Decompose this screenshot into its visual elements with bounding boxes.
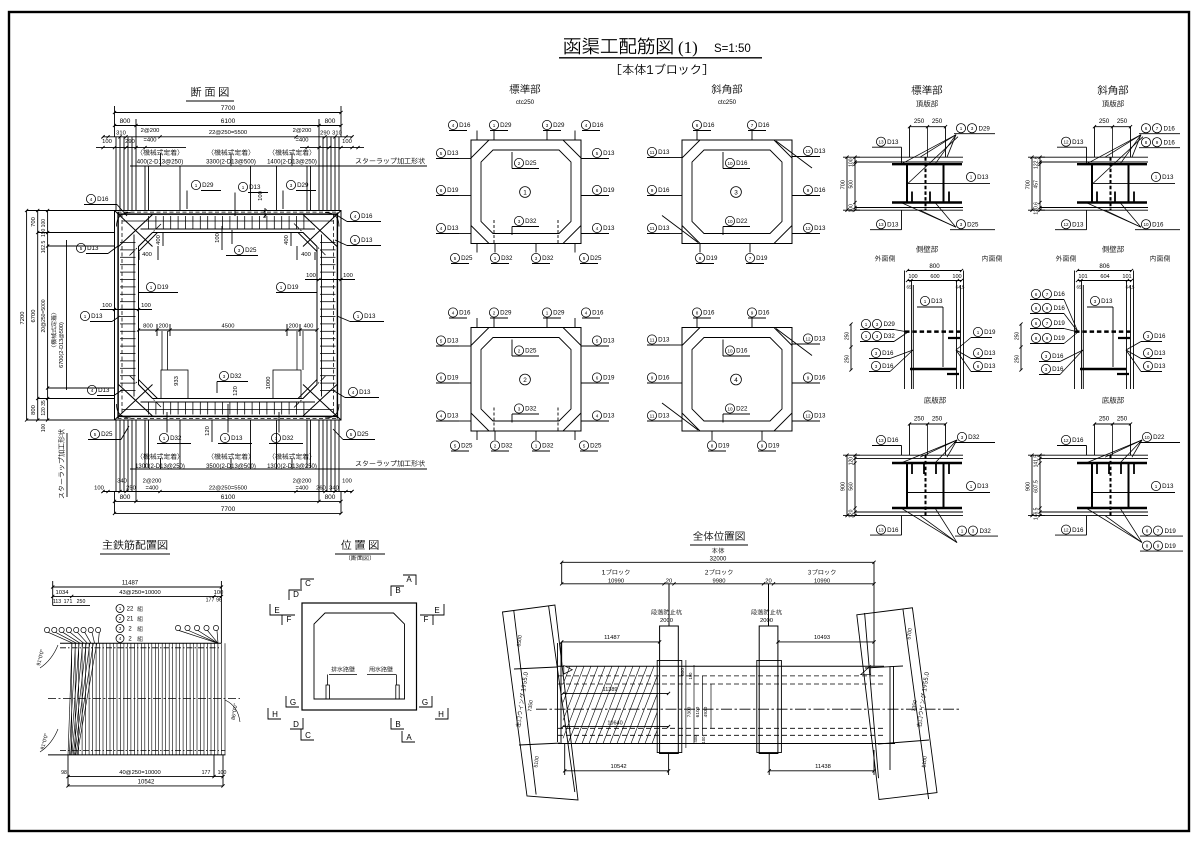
svg-text:2@200: 2@200 bbox=[143, 479, 162, 485]
svg-text:11438: 11438 bbox=[815, 764, 831, 770]
svg-text:D19: D19 bbox=[706, 255, 718, 262]
svg-text:5: 5 bbox=[583, 256, 586, 261]
svg-text:3: 3 bbox=[875, 364, 878, 369]
svg-text:D16: D16 bbox=[1052, 353, 1064, 360]
svg-text:6: 6 bbox=[1147, 364, 1150, 369]
svg-text:9: 9 bbox=[761, 443, 764, 448]
svg-text:12: 12 bbox=[805, 149, 811, 154]
svg-text:11389: 11389 bbox=[603, 687, 618, 693]
svg-text:D16: D16 bbox=[882, 350, 894, 357]
svg-text:310: 310 bbox=[332, 131, 342, 137]
svg-text:D13: D13 bbox=[249, 184, 261, 191]
svg-text:1: 1 bbox=[1155, 484, 1158, 489]
svg-text:1: 1 bbox=[865, 322, 868, 327]
svg-text:D13: D13 bbox=[447, 413, 459, 420]
svg-text:4: 4 bbox=[585, 310, 588, 315]
svg-text:C: C bbox=[305, 731, 311, 740]
svg-text:1: 1 bbox=[960, 126, 963, 131]
svg-text:1: 1 bbox=[970, 175, 973, 180]
svg-text:607.5: 607.5 bbox=[1034, 480, 1040, 493]
svg-text:D13: D13 bbox=[658, 337, 670, 344]
svg-text:D13: D13 bbox=[814, 336, 826, 343]
svg-text:D16: D16 bbox=[1164, 139, 1176, 146]
svg-text:5: 5 bbox=[350, 432, 353, 437]
svg-text:D22: D22 bbox=[736, 218, 748, 225]
svg-text:D16: D16 bbox=[592, 310, 604, 317]
svg-text:D32: D32 bbox=[525, 406, 537, 413]
svg-text:400(2-D13@250): 400(2-D13@250) bbox=[137, 160, 183, 166]
svg-text:D13: D13 bbox=[231, 435, 243, 442]
svg-text:65: 65 bbox=[1076, 285, 1082, 290]
svg-text:D32: D32 bbox=[968, 434, 980, 441]
svg-text:D13: D13 bbox=[447, 338, 459, 345]
svg-text:100: 100 bbox=[342, 139, 352, 145]
svg-text:D13: D13 bbox=[658, 413, 670, 420]
svg-text:12: 12 bbox=[1063, 438, 1069, 443]
svg-text:1: 1 bbox=[150, 285, 153, 290]
svg-text:800: 800 bbox=[120, 118, 131, 125]
svg-text:1034: 1034 bbox=[56, 590, 70, 596]
svg-text:2: 2 bbox=[119, 616, 122, 621]
svg-text:A: A bbox=[406, 733, 412, 742]
svg-text:12: 12 bbox=[805, 226, 811, 231]
svg-text:D32: D32 bbox=[282, 435, 294, 442]
svg-text:4: 4 bbox=[354, 214, 357, 219]
svg-text:D13: D13 bbox=[977, 483, 989, 490]
svg-text:146.5: 146.5 bbox=[1034, 507, 1040, 520]
svg-text:5: 5 bbox=[596, 338, 599, 343]
svg-text:3: 3 bbox=[535, 256, 538, 261]
svg-text:(1): (1) bbox=[678, 38, 698, 57]
svg-text:933: 933 bbox=[174, 376, 180, 386]
svg-text:D25: D25 bbox=[461, 443, 473, 450]
svg-text:11: 11 bbox=[650, 337, 655, 342]
svg-text:D16: D16 bbox=[887, 527, 899, 534]
svg-text:D13: D13 bbox=[931, 298, 943, 305]
svg-text:D16: D16 bbox=[658, 375, 670, 382]
svg-text:D16: D16 bbox=[97, 196, 109, 203]
svg-text:200: 200 bbox=[159, 324, 169, 330]
svg-text:310: 310 bbox=[116, 131, 126, 137]
svg-text:D19: D19 bbox=[768, 443, 780, 450]
svg-text:9: 9 bbox=[1046, 336, 1049, 341]
svg-text:D16: D16 bbox=[814, 375, 826, 382]
svg-text:H: H bbox=[272, 710, 278, 719]
svg-text:120: 120 bbox=[205, 426, 211, 436]
svg-text:250: 250 bbox=[914, 416, 925, 423]
svg-text:6700(2-D13@500): 6700(2-D13@500) bbox=[59, 322, 65, 368]
svg-text:D32: D32 bbox=[501, 443, 513, 450]
svg-text:5: 5 bbox=[440, 338, 443, 343]
svg-text:D29: D29 bbox=[500, 122, 512, 129]
svg-text:806: 806 bbox=[1099, 263, 1110, 270]
svg-text:2: 2 bbox=[518, 161, 521, 166]
svg-text:900: 900 bbox=[841, 482, 847, 491]
svg-text:D19: D19 bbox=[1054, 320, 1066, 327]
svg-text:2000: 2000 bbox=[660, 618, 673, 624]
svg-text:3: 3 bbox=[960, 222, 963, 227]
svg-text:1: 1 bbox=[280, 285, 283, 290]
svg-text:2@200: 2@200 bbox=[293, 128, 312, 134]
svg-text:D13: D13 bbox=[658, 149, 670, 156]
svg-text:6: 6 bbox=[1035, 321, 1038, 326]
svg-text:D25: D25 bbox=[590, 255, 602, 262]
svg-text:21: 21 bbox=[127, 617, 134, 623]
svg-text:800: 800 bbox=[143, 324, 153, 330]
svg-text:D16: D16 bbox=[459, 122, 471, 129]
svg-text:S=1:50: S=1:50 bbox=[714, 43, 751, 55]
svg-text:6700: 6700 bbox=[31, 310, 37, 323]
svg-text:D16: D16 bbox=[459, 310, 471, 317]
svg-text:D19: D19 bbox=[1054, 335, 1066, 342]
svg-text:3: 3 bbox=[1045, 367, 1048, 372]
svg-text:120.6: 120.6 bbox=[1034, 202, 1040, 215]
svg-text:7: 7 bbox=[749, 256, 752, 261]
svg-text:457: 457 bbox=[1034, 180, 1040, 189]
svg-text:340: 340 bbox=[329, 486, 339, 492]
svg-text:22: 22 bbox=[127, 607, 134, 613]
svg-text:D16: D16 bbox=[703, 310, 715, 317]
svg-text:100: 100 bbox=[258, 191, 264, 201]
svg-text:1: 1 bbox=[977, 330, 980, 335]
svg-text:D13: D13 bbox=[1072, 139, 1084, 146]
svg-text:D29: D29 bbox=[297, 182, 309, 189]
svg-text:D13: D13 bbox=[887, 221, 899, 228]
svg-text:113: 113 bbox=[53, 599, 61, 605]
svg-text:11: 11 bbox=[650, 226, 655, 231]
svg-text:10: 10 bbox=[1143, 222, 1149, 227]
svg-text:D25: D25 bbox=[245, 247, 257, 254]
svg-text:700: 700 bbox=[1026, 180, 1032, 189]
svg-text:6: 6 bbox=[977, 364, 980, 369]
svg-text:9: 9 bbox=[807, 188, 810, 193]
svg-text:1: 1 bbox=[493, 123, 496, 128]
svg-text:400: 400 bbox=[142, 252, 152, 258]
svg-text:D13: D13 bbox=[359, 389, 371, 396]
svg-text:4: 4 bbox=[596, 226, 599, 231]
svg-text:D25: D25 bbox=[461, 255, 473, 262]
svg-text:100: 100 bbox=[41, 424, 47, 433]
svg-text:9: 9 bbox=[1157, 543, 1160, 548]
svg-text:100: 100 bbox=[94, 486, 104, 492]
svg-text:2@200: 2@200 bbox=[141, 128, 160, 134]
svg-text:D13: D13 bbox=[1101, 298, 1113, 305]
svg-text:6: 6 bbox=[440, 375, 443, 380]
svg-text:800: 800 bbox=[325, 118, 336, 125]
svg-text:D16: D16 bbox=[1054, 291, 1066, 298]
svg-text:6: 6 bbox=[596, 188, 599, 193]
svg-text:98: 98 bbox=[61, 770, 67, 776]
svg-text:6: 6 bbox=[440, 188, 443, 193]
svg-text:7200: 7200 bbox=[20, 312, 26, 325]
svg-text:700: 700 bbox=[841, 180, 847, 189]
svg-text:2: 2 bbox=[518, 348, 521, 353]
svg-text:D16: D16 bbox=[361, 213, 373, 220]
svg-text:F: F bbox=[424, 615, 429, 624]
svg-text:250: 250 bbox=[1099, 416, 1110, 423]
svg-text:122.6: 122.6 bbox=[1034, 156, 1040, 169]
svg-text:D19: D19 bbox=[287, 284, 299, 291]
svg-text:12: 12 bbox=[805, 413, 811, 418]
svg-text:6: 6 bbox=[1035, 292, 1038, 297]
svg-text:22@250=5500: 22@250=5500 bbox=[209, 130, 247, 136]
svg-text:=400: =400 bbox=[143, 138, 156, 144]
svg-text:560: 560 bbox=[849, 482, 855, 491]
svg-text:64,5: 64,5 bbox=[1126, 285, 1135, 290]
svg-text:4: 4 bbox=[585, 123, 588, 128]
svg-text:11: 11 bbox=[650, 150, 655, 155]
svg-text:2000: 2000 bbox=[760, 618, 773, 624]
svg-text:D16: D16 bbox=[736, 348, 748, 355]
svg-text:100: 100 bbox=[214, 590, 224, 596]
svg-text:700: 700 bbox=[31, 217, 37, 227]
svg-text:1: 1 bbox=[119, 606, 122, 611]
svg-text:D19: D19 bbox=[1165, 528, 1177, 535]
svg-text:250: 250 bbox=[1099, 118, 1110, 125]
svg-text:4: 4 bbox=[352, 390, 355, 395]
svg-text:7700: 7700 bbox=[221, 506, 236, 513]
svg-text:96: 96 bbox=[216, 598, 222, 604]
svg-text:D13: D13 bbox=[87, 245, 99, 252]
svg-text:D16: D16 bbox=[592, 122, 604, 129]
svg-text:120: 120 bbox=[849, 457, 855, 466]
svg-text:4: 4 bbox=[440, 226, 443, 231]
svg-text:=400: =400 bbox=[145, 486, 158, 492]
svg-text:5: 5 bbox=[596, 151, 599, 156]
svg-text:7700: 7700 bbox=[221, 105, 236, 112]
svg-text:6100: 6100 bbox=[221, 494, 236, 501]
svg-text:G: G bbox=[290, 698, 296, 707]
svg-text:8: 8 bbox=[1035, 336, 1038, 341]
svg-text:D13: D13 bbox=[658, 225, 670, 232]
svg-text:4: 4 bbox=[596, 413, 599, 418]
svg-text:4: 4 bbox=[452, 123, 455, 128]
svg-text:7: 7 bbox=[1046, 321, 1049, 326]
svg-text:100: 100 bbox=[218, 770, 227, 776]
svg-text:2: 2 bbox=[493, 310, 496, 315]
svg-text:100: 100 bbox=[306, 273, 316, 279]
svg-text:=400: =400 bbox=[295, 138, 308, 144]
svg-text:3: 3 bbox=[972, 528, 975, 533]
svg-text:D16: D16 bbox=[758, 310, 770, 317]
svg-text:3: 3 bbox=[1094, 299, 1097, 304]
svg-text:3: 3 bbox=[290, 183, 293, 188]
svg-text:1: 1 bbox=[523, 190, 527, 197]
svg-text:250: 250 bbox=[845, 332, 851, 341]
svg-text:177: 177 bbox=[202, 770, 211, 776]
svg-text:1: 1 bbox=[970, 484, 973, 489]
svg-text:F: F bbox=[287, 615, 292, 624]
svg-text:250: 250 bbox=[1015, 355, 1021, 364]
svg-text:250: 250 bbox=[845, 355, 851, 364]
svg-text:100: 100 bbox=[701, 736, 706, 744]
svg-text:12: 12 bbox=[1063, 527, 1069, 532]
svg-text:9: 9 bbox=[751, 310, 754, 315]
svg-text:100: 100 bbox=[688, 672, 693, 680]
svg-text:2: 2 bbox=[494, 443, 497, 448]
svg-text:200: 200 bbox=[289, 324, 299, 330]
svg-text:10542: 10542 bbox=[611, 764, 627, 770]
svg-text:D19: D19 bbox=[1165, 543, 1177, 550]
svg-text:900: 900 bbox=[1026, 482, 1032, 491]
svg-text:10: 10 bbox=[727, 348, 733, 353]
svg-text:D32: D32 bbox=[980, 528, 992, 535]
svg-text:100: 100 bbox=[849, 158, 855, 167]
svg-text:B: B bbox=[395, 720, 400, 729]
svg-text:D16: D16 bbox=[887, 437, 899, 444]
svg-text:20@250=5000: 20@250=5000 bbox=[41, 299, 47, 332]
svg-text:800: 800 bbox=[31, 405, 37, 415]
svg-text:13: 13 bbox=[878, 438, 884, 443]
svg-text:250: 250 bbox=[126, 486, 136, 492]
svg-text:D19: D19 bbox=[157, 284, 169, 291]
svg-text:1000: 1000 bbox=[266, 377, 272, 390]
svg-text:8: 8 bbox=[1145, 140, 1148, 145]
svg-text:3: 3 bbox=[119, 626, 122, 631]
svg-text:D19: D19 bbox=[447, 375, 459, 382]
svg-text:11487: 11487 bbox=[122, 581, 139, 587]
svg-text:10: 10 bbox=[727, 406, 733, 411]
svg-text:D19: D19 bbox=[984, 329, 996, 336]
svg-text:190 100: 190 100 bbox=[41, 219, 47, 237]
svg-text:4: 4 bbox=[977, 351, 980, 356]
svg-text:250: 250 bbox=[1117, 118, 1128, 125]
svg-text:D25: D25 bbox=[590, 443, 602, 450]
svg-text:4: 4 bbox=[734, 377, 738, 384]
svg-text:1: 1 bbox=[494, 256, 497, 261]
svg-text:43@250=10000: 43@250=10000 bbox=[119, 590, 161, 596]
svg-text:9: 9 bbox=[807, 375, 810, 380]
svg-text:8: 8 bbox=[1035, 306, 1038, 311]
svg-text:D29: D29 bbox=[553, 310, 565, 317]
svg-text:600: 600 bbox=[930, 274, 939, 280]
svg-text:3: 3 bbox=[223, 374, 226, 379]
svg-text:2: 2 bbox=[523, 377, 527, 384]
svg-text:3: 3 bbox=[971, 126, 974, 131]
svg-text:65: 65 bbox=[906, 285, 912, 290]
svg-text:D13: D13 bbox=[91, 313, 103, 320]
svg-text:4: 4 bbox=[452, 310, 455, 315]
svg-text:D16: D16 bbox=[1154, 333, 1166, 340]
svg-text:D13: D13 bbox=[814, 413, 826, 420]
svg-text:400: 400 bbox=[304, 324, 314, 330]
svg-text:2@200: 2@200 bbox=[293, 479, 312, 485]
svg-text:3: 3 bbox=[961, 435, 964, 440]
svg-text:ctc250: ctc250 bbox=[516, 99, 535, 106]
svg-text:4500: 4500 bbox=[222, 324, 235, 330]
svg-text:162.5: 162.5 bbox=[41, 241, 47, 254]
svg-text:101: 101 bbox=[1122, 274, 1131, 280]
svg-text:D13: D13 bbox=[1072, 221, 1084, 228]
svg-text:13: 13 bbox=[878, 527, 884, 532]
svg-text:8: 8 bbox=[1146, 543, 1149, 548]
svg-text:D13: D13 bbox=[364, 313, 376, 320]
svg-text:6: 6 bbox=[696, 123, 699, 128]
svg-text:250: 250 bbox=[914, 118, 925, 125]
svg-text:32000: 32000 bbox=[710, 557, 727, 563]
svg-text:100: 100 bbox=[343, 273, 353, 279]
svg-text:3: 3 bbox=[518, 406, 521, 411]
svg-text:D13: D13 bbox=[447, 150, 459, 157]
svg-text:1: 1 bbox=[961, 528, 964, 533]
svg-text:D: D bbox=[293, 590, 299, 599]
svg-text:6100: 6100 bbox=[695, 706, 701, 717]
svg-text:D32: D32 bbox=[884, 333, 896, 340]
svg-text:9: 9 bbox=[1156, 140, 1159, 145]
svg-text:10: 10 bbox=[1144, 435, 1150, 440]
svg-text:4: 4 bbox=[91, 388, 94, 393]
svg-text:D22: D22 bbox=[1153, 434, 1165, 441]
svg-text:13: 13 bbox=[878, 140, 884, 145]
svg-text:7: 7 bbox=[1046, 292, 1049, 297]
svg-text:D13: D13 bbox=[603, 413, 615, 420]
svg-text:3: 3 bbox=[876, 322, 879, 327]
svg-text:11: 11 bbox=[650, 413, 655, 418]
svg-text:5: 5 bbox=[80, 246, 83, 251]
svg-text:D13: D13 bbox=[361, 237, 373, 244]
svg-text:D13: D13 bbox=[1154, 350, 1166, 357]
svg-text:1: 1 bbox=[242, 185, 245, 190]
svg-text:D16: D16 bbox=[658, 187, 670, 194]
svg-text:260: 260 bbox=[316, 486, 326, 492]
svg-text:7: 7 bbox=[1156, 126, 1159, 131]
svg-text:100: 100 bbox=[342, 479, 352, 485]
svg-text:5: 5 bbox=[454, 256, 457, 261]
svg-text:D29: D29 bbox=[553, 122, 565, 129]
svg-text:800: 800 bbox=[325, 494, 336, 501]
svg-text:3: 3 bbox=[238, 248, 241, 253]
svg-text:800: 800 bbox=[929, 263, 940, 270]
svg-text:120: 120 bbox=[233, 386, 239, 396]
svg-text:4: 4 bbox=[119, 636, 122, 641]
svg-text:D: D bbox=[293, 720, 299, 729]
svg-text:800: 800 bbox=[680, 668, 686, 676]
svg-text:100: 100 bbox=[102, 139, 112, 145]
svg-text:D13: D13 bbox=[984, 363, 996, 370]
svg-text:400: 400 bbox=[693, 735, 698, 743]
svg-text:1: 1 bbox=[357, 314, 360, 319]
svg-text:D13: D13 bbox=[1154, 363, 1166, 370]
svg-text:D25: D25 bbox=[525, 160, 537, 167]
svg-text:D13: D13 bbox=[98, 387, 110, 394]
svg-text:3: 3 bbox=[1045, 354, 1048, 359]
svg-text:G: G bbox=[422, 698, 428, 707]
svg-text:400: 400 bbox=[301, 252, 311, 258]
svg-text:250: 250 bbox=[932, 118, 943, 125]
svg-text:7: 7 bbox=[751, 123, 754, 128]
svg-text:D32: D32 bbox=[542, 255, 554, 262]
svg-text:5: 5 bbox=[94, 432, 97, 437]
svg-text:11487: 11487 bbox=[604, 635, 620, 641]
svg-text:6: 6 bbox=[1145, 126, 1148, 131]
svg-text:3: 3 bbox=[546, 123, 549, 128]
svg-text:7300: 7300 bbox=[687, 706, 693, 717]
svg-text:D19: D19 bbox=[756, 255, 768, 262]
svg-text:D13: D13 bbox=[603, 338, 615, 345]
svg-text:D16: D16 bbox=[703, 122, 715, 129]
svg-text:D19: D19 bbox=[603, 375, 615, 382]
svg-text:8: 8 bbox=[696, 310, 699, 315]
svg-text:D25: D25 bbox=[357, 431, 369, 438]
svg-text:D32: D32 bbox=[542, 443, 554, 450]
svg-text:6: 6 bbox=[596, 375, 599, 380]
svg-text:4: 4 bbox=[90, 197, 93, 202]
svg-text:290: 290 bbox=[320, 131, 330, 137]
svg-text:D13: D13 bbox=[1162, 483, 1174, 490]
svg-text:D29: D29 bbox=[500, 310, 512, 317]
svg-text:400: 400 bbox=[284, 235, 290, 245]
svg-text:101: 101 bbox=[1078, 274, 1087, 280]
